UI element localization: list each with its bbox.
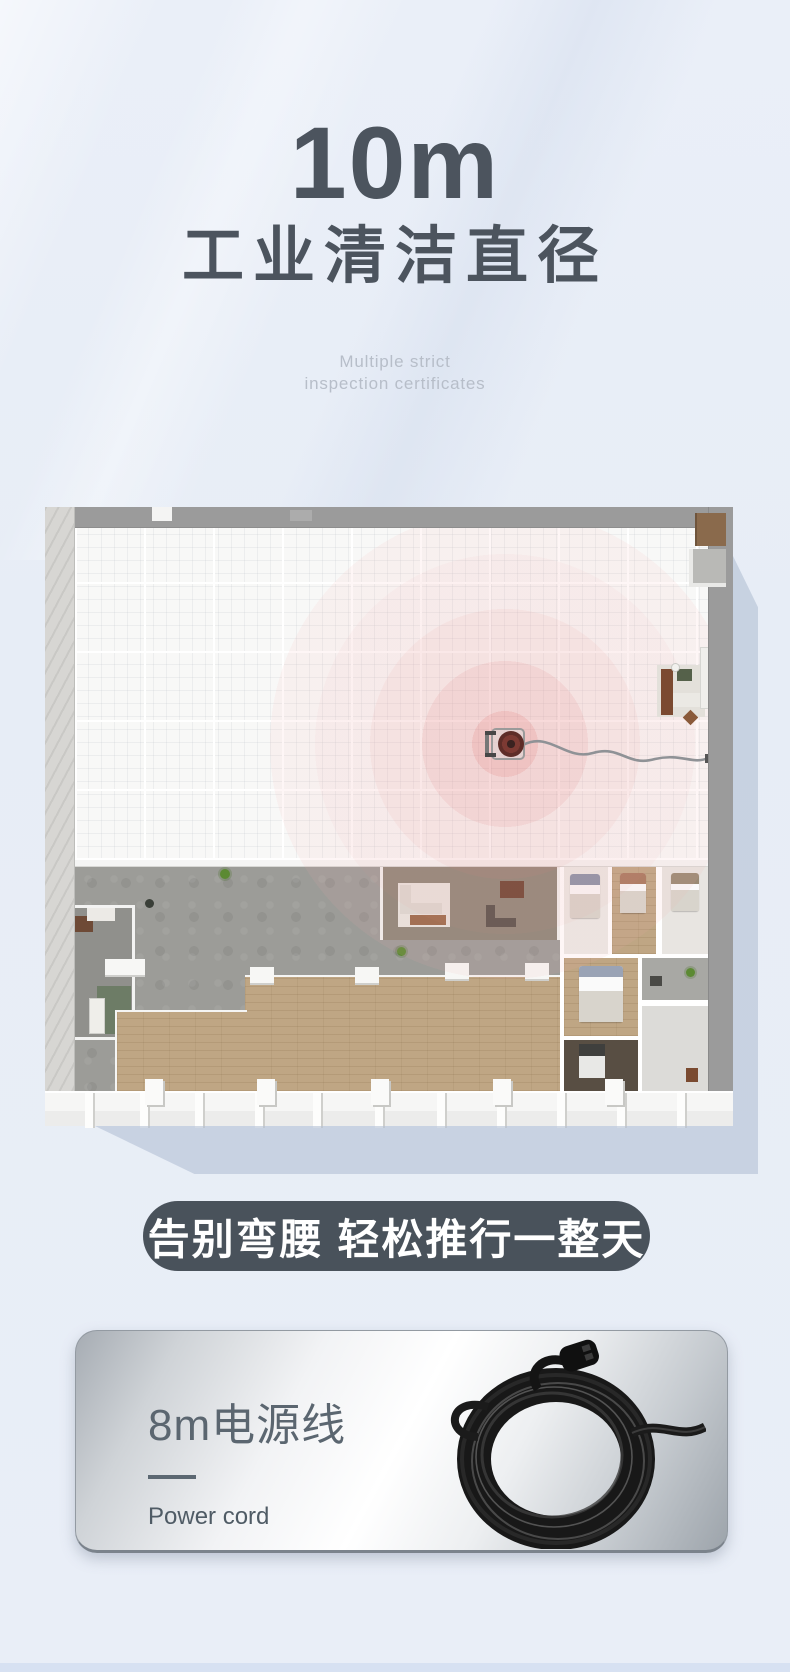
desk-cushion [677,669,692,681]
blanket [620,891,646,913]
office-desk-white [87,908,115,921]
pillar-block [145,1079,163,1105]
pillar-block [605,1079,623,1105]
power-cord-coil-illustration [406,1337,706,1549]
power-cord-card: 8m电源线 Power cord [75,1330,728,1553]
mullion [85,1093,93,1128]
furniture-item [686,1068,698,1082]
plant [686,968,695,977]
wood-floor-area [245,975,560,1091]
bedroom-large [564,958,638,1036]
corner-shelf [689,549,726,587]
door-gap [152,507,172,521]
desk-lamp [671,663,680,672]
pillar-block [371,1079,389,1105]
pillow [620,873,646,884]
pillar [445,963,469,979]
bedroom [564,866,608,954]
wood-floor-extension [115,1010,247,1091]
divider-wall [75,860,708,866]
bedroom-block [560,862,708,1091]
hero-headline-chinese: 工业清洁直径 [0,224,790,289]
wall-mark [290,510,312,521]
couch [410,915,446,925]
pillow [579,966,623,977]
mullion [313,1093,321,1128]
machine-grip [485,731,496,735]
feature-banner-label: 告别弯腰 轻松推行一整天 [148,1206,646,1267]
tiled-hall-floor [75,528,708,860]
power-cord-subtitle: Power cord [148,1503,346,1531]
blanket [671,890,699,911]
next-section-strip [0,1663,790,1672]
sofa [400,885,411,913]
hero-section: 10m 工业清洁直径 Multiple strict inspection ce… [0,112,790,395]
plan-shadow-right [733,556,758,1126]
bed [671,873,699,911]
right-wall [708,507,733,1091]
hero-subtitle-line2: inspection certificates [0,373,790,395]
hero-subtitle: Multiple strict inspection certificates [0,351,790,395]
dining-table [500,881,524,898]
mullion [677,1093,685,1128]
top-wall [45,507,733,528]
media-cabinet [486,905,516,927]
pillar [105,959,145,975]
bedroom [662,866,708,954]
pillow [570,874,600,885]
plant [397,947,406,956]
machine-grip [485,753,496,757]
left-wall [45,507,75,1091]
floorplan-illustration [45,507,733,1126]
dark-storage-room [564,1040,638,1091]
pillar [525,963,549,979]
divider-line [148,1475,196,1479]
mullion [557,1093,565,1128]
pillar [355,967,379,983]
bed [579,966,623,1022]
hero-headline-measure: 10m [0,112,790,214]
desk-return [673,693,701,707]
hallway-room [642,958,708,1000]
cart-top [579,1044,605,1056]
blanket [579,991,623,1022]
plant [220,869,230,879]
small-robot [145,899,154,908]
living-room [380,863,560,940]
pillar-block [257,1079,275,1105]
page: 10m 工业清洁直径 Multiple strict inspection ce… [0,0,790,1672]
feature-banner: 告别弯腰 轻松推行一整天 [143,1201,650,1271]
corner-cabinet [695,513,726,546]
plan-shadow-bottom [95,1126,758,1174]
pillar-block [493,1079,511,1105]
power-cord-card-text: 8m电源线 Power cord [148,1389,346,1531]
appliance [89,998,105,1034]
mullion [437,1093,445,1128]
blanket [570,894,600,918]
mullion [195,1093,203,1128]
furniture-item [650,976,662,986]
machine-brush [498,731,524,757]
bedroom [612,866,656,954]
scrubber-machine-icon [485,728,525,760]
pillar [250,967,274,983]
power-cord-title: 8m电源线 [148,1389,346,1453]
pillow [671,873,699,884]
bed [570,874,600,918]
desk [661,669,673,715]
hero-subtitle-line1: Multiple strict [0,351,790,373]
bathroom [642,1006,708,1091]
bed [620,873,646,913]
